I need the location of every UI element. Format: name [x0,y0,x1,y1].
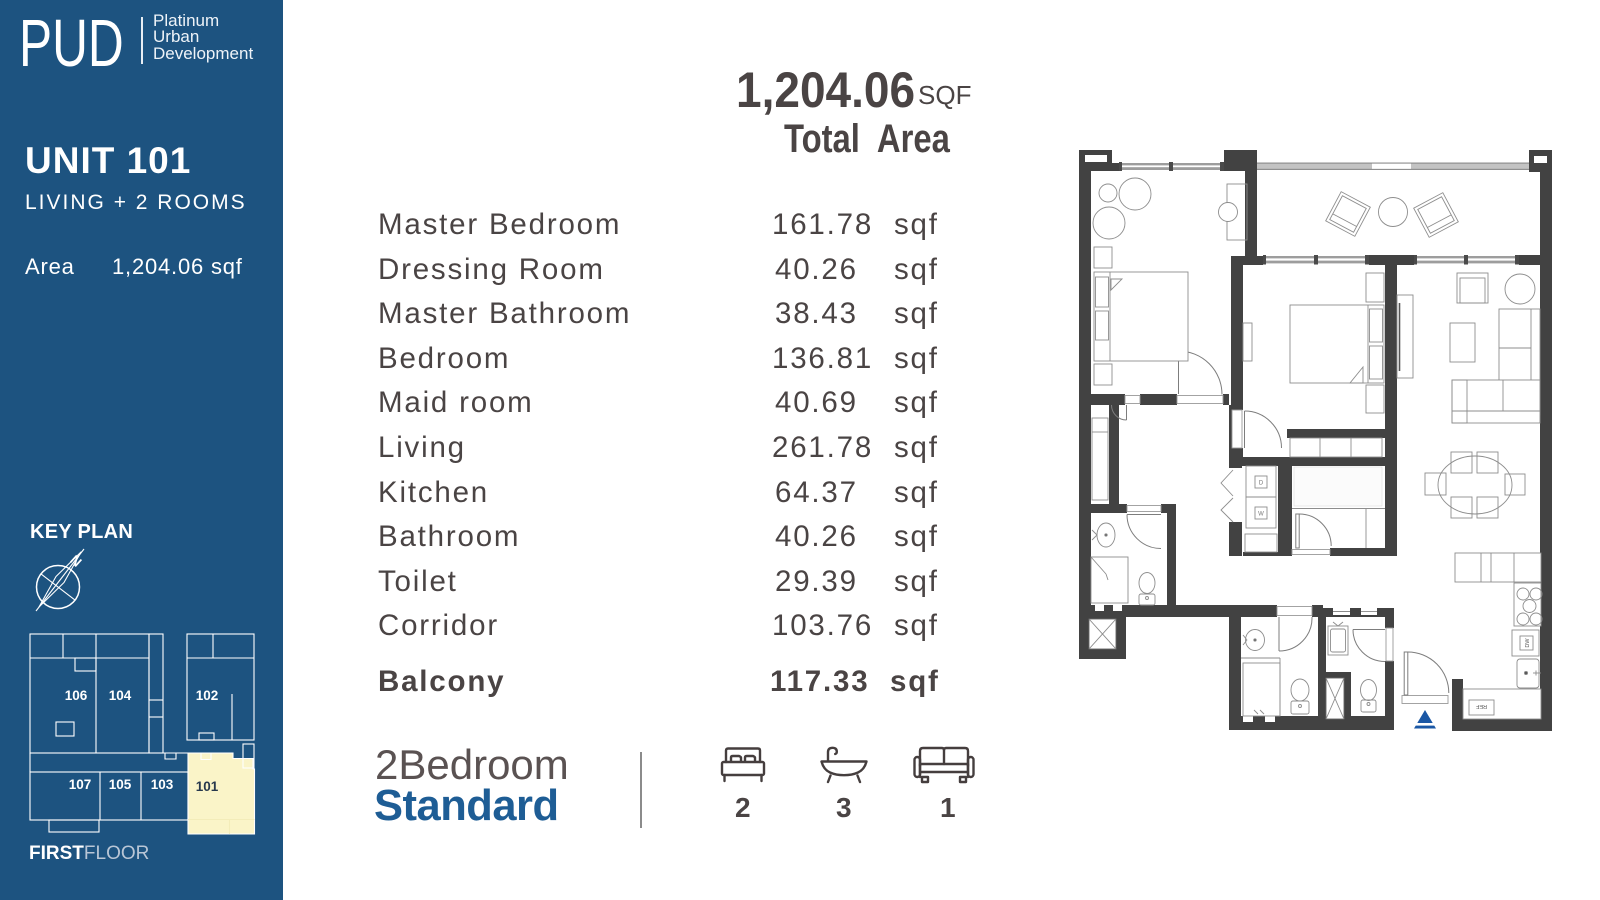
svg-text:104: 104 [109,688,132,703]
svg-text:W: W [1258,512,1264,518]
svg-text:102: 102 [196,688,219,703]
svg-text:103: 103 [151,777,174,792]
svg-text:DW: DW [1525,638,1531,648]
svg-text:REF: REF [1475,703,1487,709]
svg-text:D: D [1259,481,1264,487]
svg-text:101: 101 [196,779,219,794]
svg-text:105: 105 [109,777,132,792]
svg-text:106: 106 [65,688,88,703]
svg-text:107: 107 [69,777,92,792]
